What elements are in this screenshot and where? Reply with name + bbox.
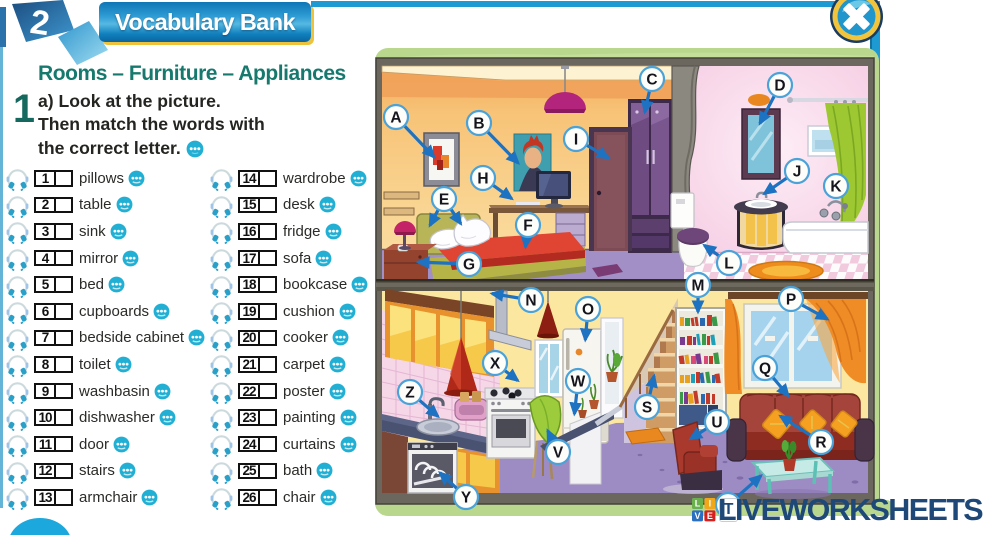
svg-text:J: J — [793, 164, 802, 181]
svg-text:W: W — [571, 374, 586, 391]
svg-text:L: L — [724, 256, 733, 273]
svg-text:V: V — [694, 511, 700, 521]
svg-text:H: H — [477, 171, 488, 188]
svg-text:Q: Q — [759, 361, 771, 378]
svg-text:2: 2 — [28, 3, 52, 43]
svg-text:B: B — [473, 116, 484, 133]
svg-text:X: X — [490, 356, 501, 373]
svg-text:I: I — [574, 132, 578, 149]
svg-text:N: N — [525, 293, 536, 310]
svg-text:V: V — [553, 445, 564, 462]
svg-text:E: E — [439, 192, 449, 209]
svg-text:G: G — [463, 257, 475, 274]
svg-text:E: E — [707, 511, 713, 521]
svg-text:I: I — [709, 499, 712, 509]
svg-text:F: F — [523, 218, 532, 235]
svg-text:A: A — [390, 110, 401, 127]
svg-text:R: R — [815, 435, 826, 452]
svg-text:Z: Z — [405, 385, 415, 402]
svg-text:L: L — [695, 499, 701, 509]
svg-text:D: D — [774, 78, 785, 95]
svg-text:K: K — [830, 179, 842, 196]
svg-text:O: O — [582, 302, 594, 319]
svg-text:U: U — [711, 415, 722, 432]
svg-text:S: S — [642, 400, 652, 417]
svg-text:C: C — [646, 72, 657, 89]
svg-text:Y: Y — [461, 490, 472, 507]
svg-text:M: M — [692, 278, 705, 295]
svg-text:P: P — [786, 292, 796, 309]
